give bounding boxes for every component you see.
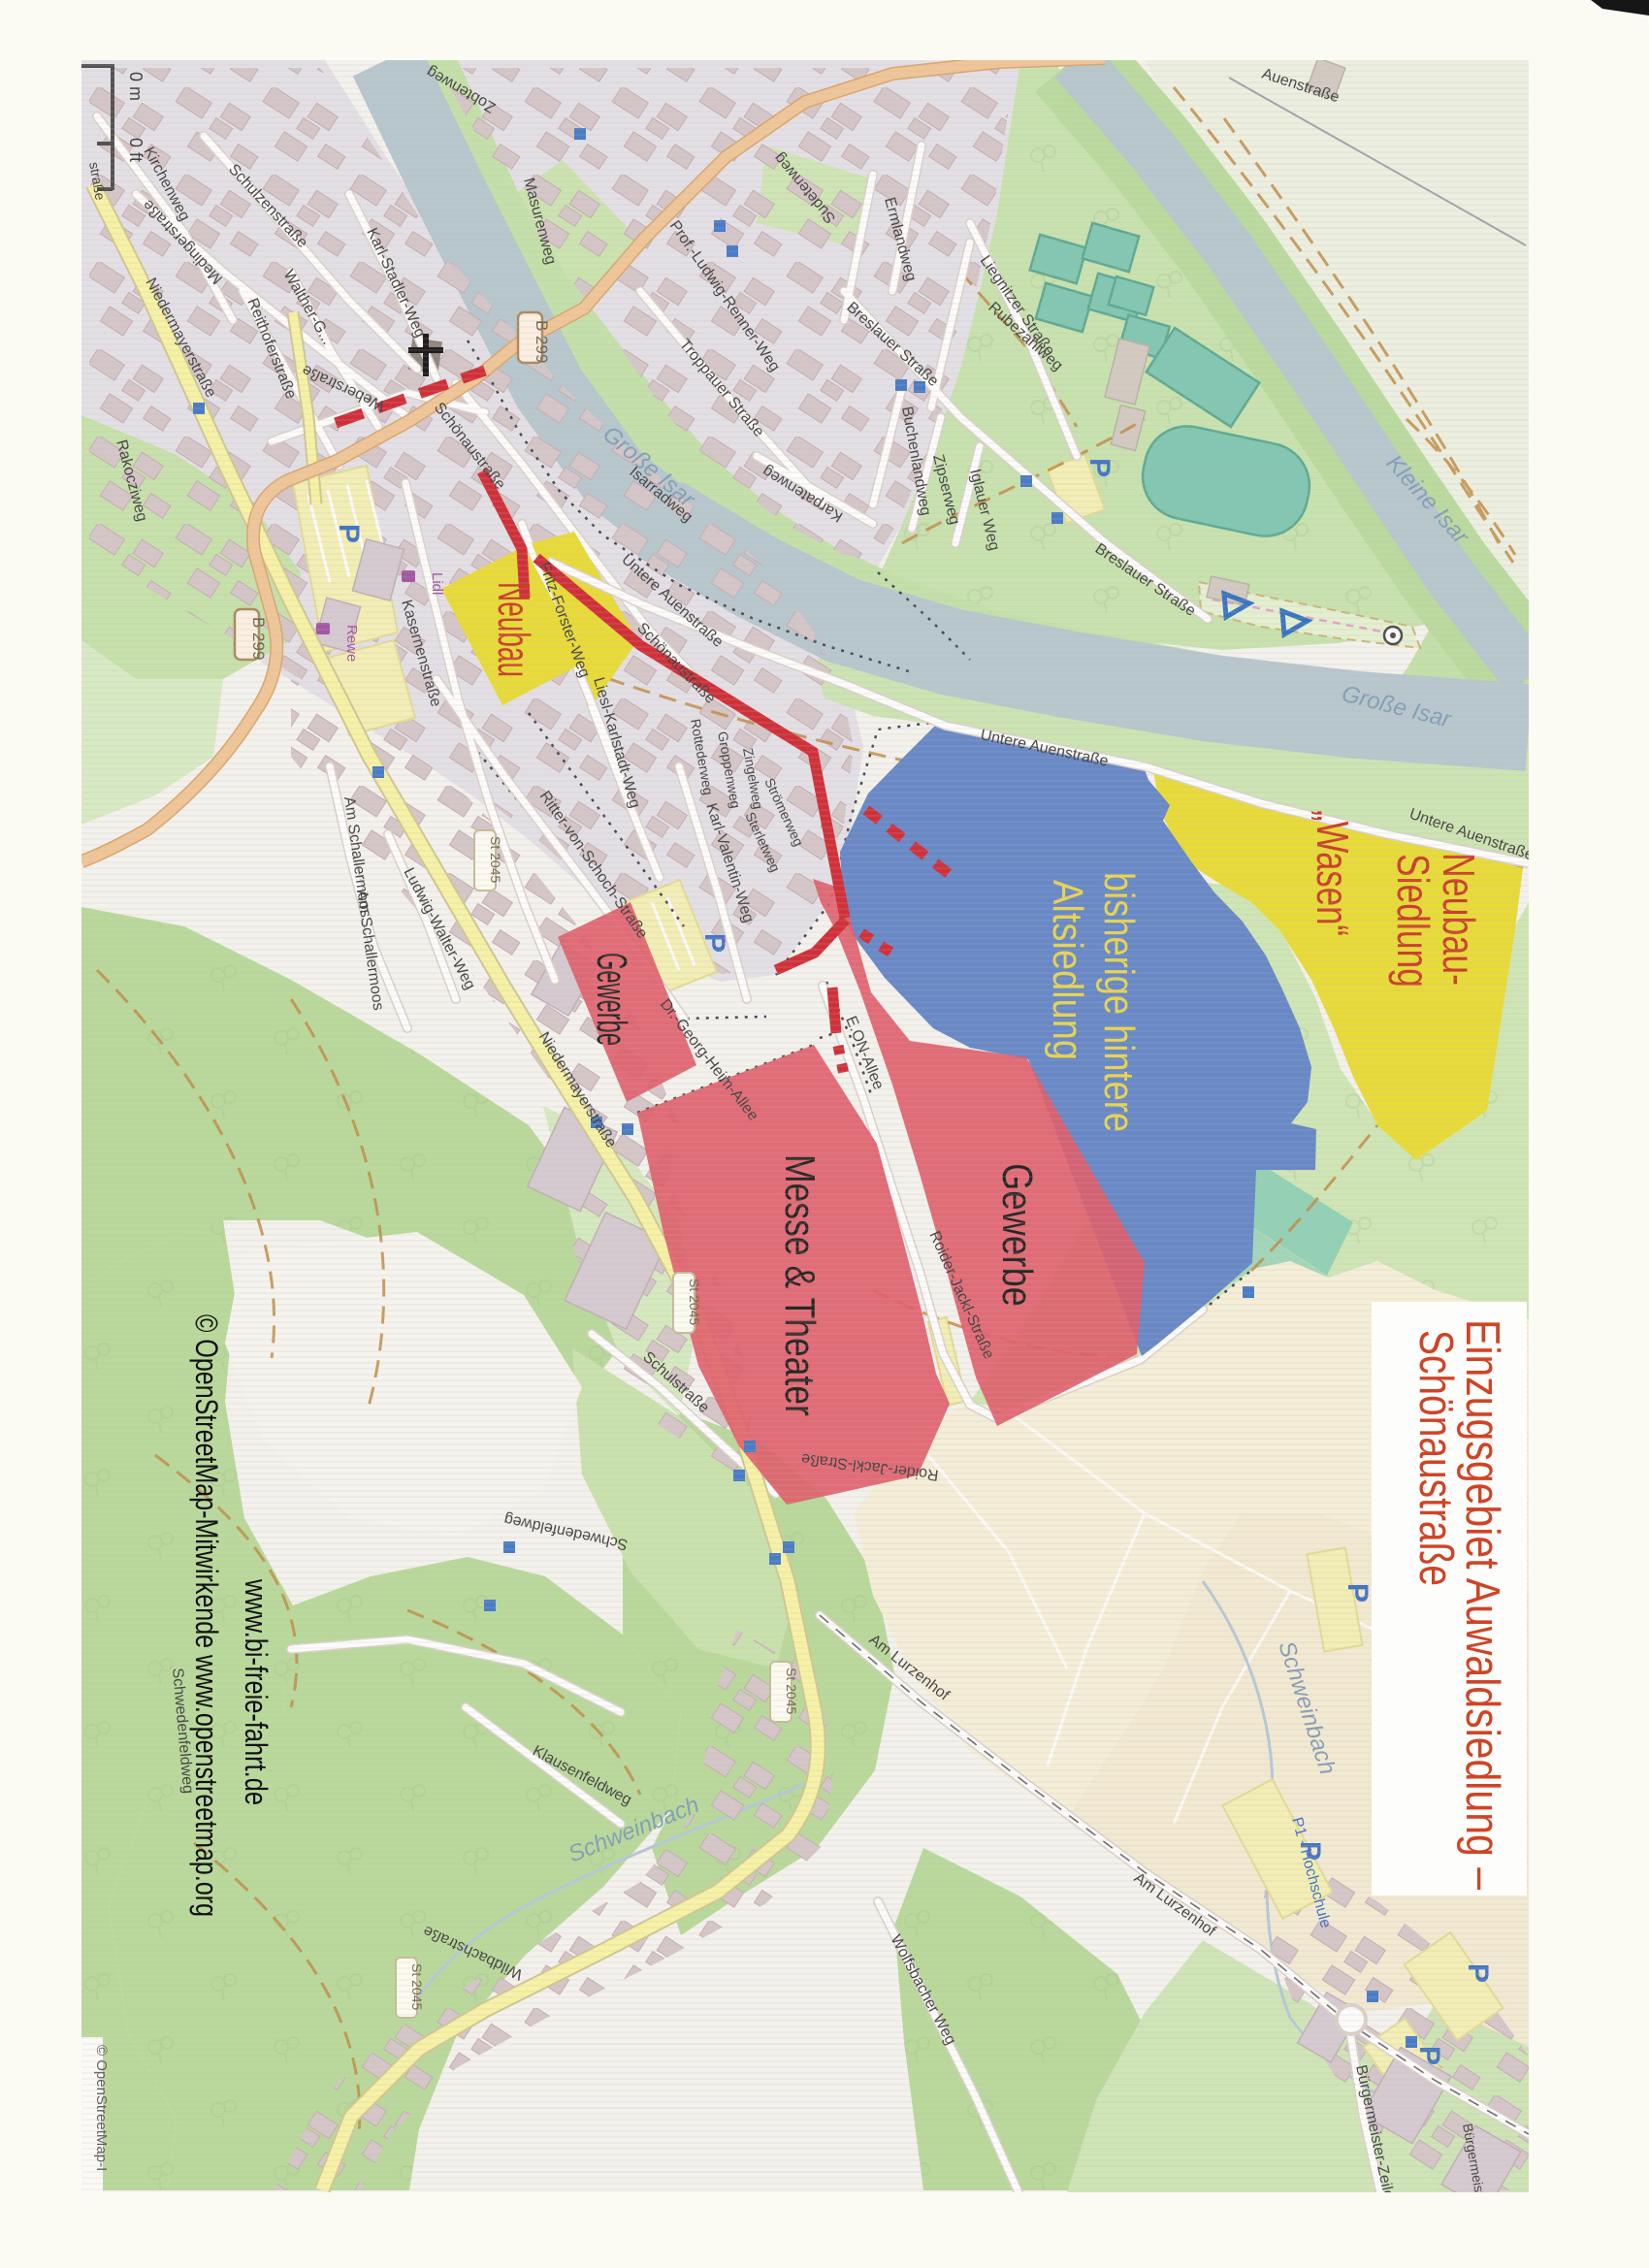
svg-text:Wolfsbacher Weg: Wolfsbacher Weg	[1042, 2194, 1114, 2268]
svg-text:Einzugsgebiet Auwaldsiedlung –: Einzugsgebiet Auwaldsiedlung –	[1456, 1319, 1508, 1891]
svg-text:www.bi-freie-fahrt.de: www.bi-freie-fahrt.de	[239, 1578, 274, 1805]
svg-text:© OpenStreetMap-Mitwirkende ww: © OpenStreetMap-Mitwirkende www.openstre…	[189, 1314, 224, 1917]
svg-text:Schönaustraße: Schönaustraße	[1409, 1330, 1462, 1586]
